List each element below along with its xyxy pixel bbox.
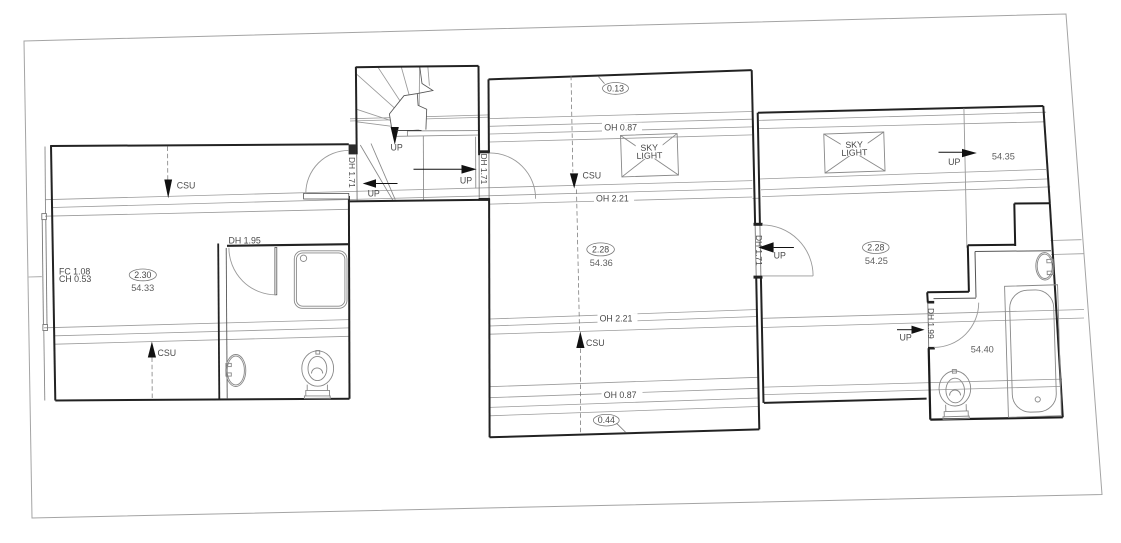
svg-text:54.33: 54.33 bbox=[131, 283, 154, 293]
svg-text:LIGHT: LIGHT bbox=[841, 147, 868, 158]
svg-text:0.13: 0.13 bbox=[607, 83, 624, 93]
svg-text:54.36: 54.36 bbox=[590, 258, 613, 268]
svg-text:CSU: CSU bbox=[583, 171, 602, 181]
svg-text:CSU: CSU bbox=[586, 338, 605, 348]
svg-text:OH 0.87: OH 0.87 bbox=[604, 123, 637, 133]
svg-text:CSU: CSU bbox=[177, 180, 196, 190]
svg-text:DH 1.95: DH 1.95 bbox=[229, 235, 261, 245]
svg-text:CH 0.53: CH 0.53 bbox=[59, 274, 91, 284]
svg-text:UP: UP bbox=[460, 175, 472, 185]
svg-text:OH 2.21: OH 2.21 bbox=[600, 314, 633, 324]
svg-text:54.35: 54.35 bbox=[992, 152, 1015, 162]
svg-text:OH 0.87: OH 0.87 bbox=[604, 390, 637, 400]
svg-text:DH 1.71: DH 1.71 bbox=[347, 157, 357, 188]
svg-text:LIGHT: LIGHT bbox=[636, 150, 663, 161]
svg-text:54.25: 54.25 bbox=[865, 256, 888, 266]
svg-text:CSU: CSU bbox=[158, 348, 177, 358]
svg-text:UP: UP bbox=[390, 143, 402, 153]
svg-text:UP: UP bbox=[774, 251, 786, 261]
svg-text:UP: UP bbox=[899, 333, 911, 343]
svg-text:2.28: 2.28 bbox=[592, 244, 609, 254]
svg-text:UP: UP bbox=[948, 157, 960, 167]
svg-text:2.28: 2.28 bbox=[867, 243, 884, 253]
svg-text:2.30: 2.30 bbox=[134, 270, 151, 280]
svg-text:DH 1.71: DH 1.71 bbox=[754, 235, 764, 266]
svg-text:OH 2.21: OH 2.21 bbox=[596, 194, 629, 204]
svg-text:0.44: 0.44 bbox=[598, 415, 615, 425]
svg-text:DH 1.71: DH 1.71 bbox=[479, 154, 489, 185]
svg-text:UP: UP bbox=[368, 188, 380, 198]
svg-text:DH 1.99: DH 1.99 bbox=[926, 308, 936, 339]
svg-text:54.40: 54.40 bbox=[971, 345, 994, 355]
